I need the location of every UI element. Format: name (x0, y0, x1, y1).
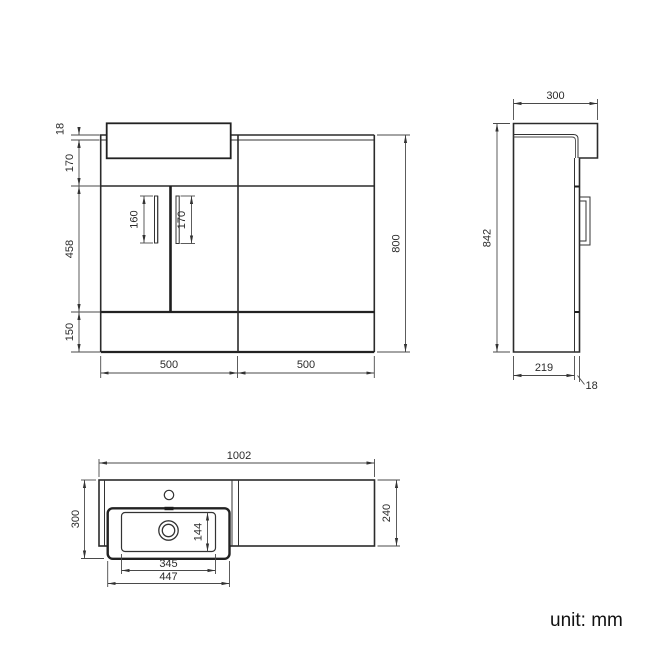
dim-left-width: 500 (160, 359, 178, 371)
unit-label: unit: mm (550, 610, 623, 631)
dim-plinth: 150 (64, 323, 76, 341)
side-top-dimension: 300 (514, 90, 598, 120)
overflow-slot (165, 507, 174, 510)
plan-view: 1002 300 240 144 345 447 (70, 450, 400, 587)
dim-worktop-thickness: 18 (55, 123, 67, 135)
dim-door-offset: 18 (586, 380, 598, 392)
dim-body-depth: 219 (535, 362, 553, 374)
dim-right-handle: 170 (176, 211, 188, 229)
plan-width-dimension: 1002 (99, 450, 375, 477)
dim-plan-right-depth: 240 (381, 504, 393, 522)
dim-bowl-width: 345 (159, 558, 177, 570)
dim-bowl-depth: 144 (193, 523, 205, 541)
dim-total-height: 800 (391, 234, 403, 252)
handle-dimensions: 160 170 (129, 196, 196, 244)
vanity-unit-drawing: 18 170 458 150 800 500 500 160 (0, 0, 650, 650)
front-view: 18 170 458 150 800 500 500 160 (55, 123, 411, 378)
dim-plan-width: 1002 (227, 450, 251, 462)
side-outline (514, 124, 598, 353)
dim-plan-depth: 300 (70, 510, 82, 528)
side-bottom-dimensions: 219 18 (514, 356, 598, 392)
side-height-dimension: 842 (482, 124, 511, 353)
basin-front-profile (107, 123, 231, 158)
plan-right-depth-dimension: 240 (378, 480, 401, 546)
side-handle (580, 197, 591, 245)
front-cabinet-outline (100, 135, 375, 352)
dim-top-section: 170 (64, 154, 76, 172)
dim-left-handle: 160 (129, 210, 141, 228)
dim-side-height: 842 (482, 229, 494, 247)
dim-right-width: 500 (297, 359, 315, 371)
front-left-dimensions: 18 170 458 150 (55, 123, 101, 352)
dim-door-section: 458 (64, 240, 76, 258)
front-bottom-dimensions: 500 500 (101, 356, 375, 378)
dim-side-depth: 300 (546, 90, 564, 102)
front-right-dimension: 800 (377, 135, 410, 352)
side-view: 300 842 219 18 (482, 90, 598, 392)
technical-drawing-canvas: 18 170 458 150 800 500 500 160 (0, 0, 650, 650)
dim-basin-width: 447 (159, 571, 177, 583)
